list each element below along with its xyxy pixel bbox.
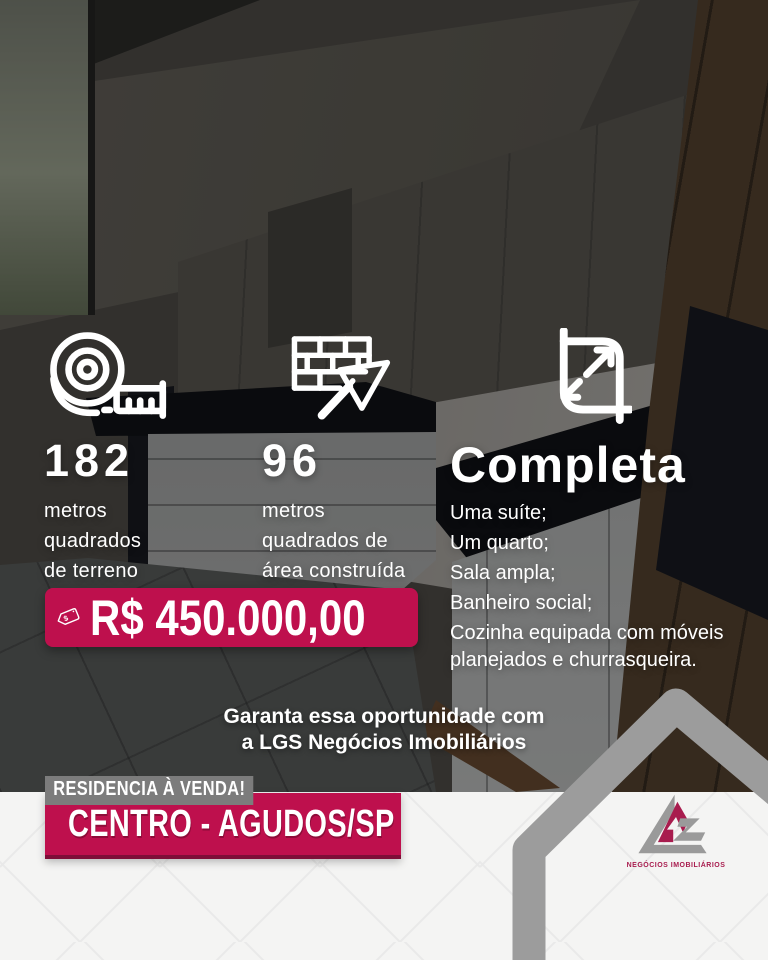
built-area-value: 96 (262, 438, 457, 483)
price-value: R$ 450.000,00 (90, 589, 366, 647)
lgs-logo: NEGÓCIOS IMOBILIÁRIOS (622, 792, 730, 869)
lgs-logo-subtitle: NEGÓCIOS IMOBILIÁRIOS (622, 862, 730, 869)
price-tag-icon: $ (55, 594, 82, 642)
bricks-trowel-icon (283, 328, 457, 430)
details-title: Completa (450, 440, 752, 490)
cta-text: Garanta essa oportunidade com a LGS Negó… (134, 704, 634, 756)
terrain-line-2: quadrados (44, 526, 249, 556)
detail-item-kitchen: Cozinha equipada com móveis planejados e… (450, 620, 752, 674)
dollar-symbol: $ (62, 613, 70, 623)
property-ad-poster: 182 metros quadrados de terreno 96 metro… (0, 0, 768, 960)
detail-item-bathroom: Banheiro social; (450, 590, 752, 617)
detail-item-bedroom: Um quarto; (450, 530, 752, 557)
feature-terrain: 182 metros quadrados de terreno (44, 328, 249, 586)
lgs-logo-mark (632, 792, 720, 856)
built-line-1: metros (262, 496, 457, 526)
price-banner: $ R$ 450.000,00 (45, 588, 418, 647)
built-line-2: quadrados de (262, 526, 457, 556)
built-line-3: área construída (262, 556, 457, 586)
measuring-tape-icon (44, 328, 249, 430)
sale-badge: RESIDENCIA À VENDA! (45, 776, 254, 805)
terrain-area-value: 182 (44, 438, 249, 483)
detail-item-livingroom: Sala ampla; (450, 560, 752, 587)
location-text: CENTRO - AGUDOS/SP (68, 803, 395, 846)
cta-line-2: a LGS Negócios Imobiliários (134, 730, 634, 756)
cta-line-1: Garanta essa oportunidade com (134, 704, 634, 730)
terrain-line-3: de terreno (44, 556, 249, 586)
feature-details: Completa Uma suíte; Um quarto; Sala ampl… (450, 328, 752, 677)
sale-badge-text: RESIDENCIA À VENDA! (53, 778, 245, 800)
detail-item-suite: Uma suíte; (450, 500, 752, 527)
feature-built-area: 96 metros quadrados de área construída (262, 328, 457, 586)
expand-arrows-icon (534, 328, 752, 430)
terrain-line-1: metros (44, 496, 249, 526)
